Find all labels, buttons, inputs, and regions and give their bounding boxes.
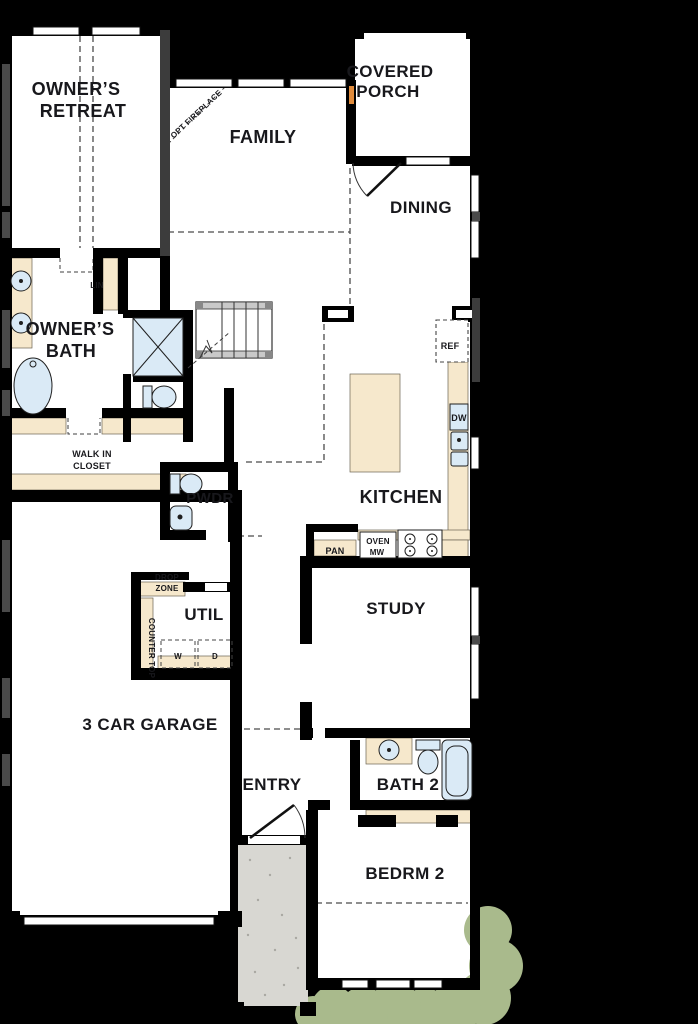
wall [350,800,472,810]
stoop-slab [238,843,308,1006]
kitchen-sink-icon [451,452,468,466]
window-icon [2,390,10,416]
wall [160,30,170,256]
linen-shelf [103,258,118,310]
window-icon [33,27,79,35]
label-garage: 3 CAR GARAGE [82,715,217,734]
window-icon [92,27,140,35]
floor-owners-retreat [8,30,170,256]
drain-icon [20,322,23,325]
drain-icon [178,515,182,519]
toilet-tank-icon [170,474,180,494]
label-oven: OVEN [366,537,389,546]
toilet-tank-icon [416,740,440,750]
window-icon [414,980,442,988]
wall [352,28,478,33]
label-mw: MW [370,548,385,557]
label-owners-bath: OWNER’S [26,319,115,339]
label-counter-top: COUNTER TOP [147,618,156,679]
window-icon [290,79,346,87]
closet-shelf [10,418,66,434]
window-icon [2,678,10,718]
label-covered-porch: PORCH [356,82,419,101]
label-pwdr: PWDR [186,490,233,507]
tub-faucet-icon [30,361,36,367]
toilet-tank-icon [143,386,152,408]
wall-post-slot [328,310,348,318]
drain-icon [20,280,23,283]
wall [131,572,141,672]
label-walkin-closet: WALK IN [72,449,111,459]
label-pan: PAN [326,546,345,556]
wall [232,1002,244,1016]
front-stoop [238,843,308,1006]
toilet-icon [152,386,176,408]
wall-post-slot [456,310,472,318]
wall [300,1002,316,1016]
label-family: FAMILY [230,127,297,147]
door-opening [205,583,227,591]
window-icon [2,212,10,238]
window-icon [471,221,479,258]
wall [306,524,358,532]
drain-icon [388,749,391,752]
window-icon [471,644,479,699]
window-icon [2,754,10,786]
wall [436,815,458,827]
wall [230,492,242,843]
window-mullion [472,212,480,221]
window-icon [238,79,284,87]
label-entry: ENTRY [243,775,302,794]
label-covered-porch: COVERED [347,62,434,81]
wall [8,248,60,258]
wall [123,310,193,318]
label-drop-zone: DROP [155,573,179,582]
label-util: UTIL [184,605,223,624]
wall [0,256,12,492]
drain-icon [458,439,461,442]
window-mullion [472,636,480,644]
window-icon [342,980,368,988]
kitchen-counter [440,540,468,558]
label-ref: REF [441,341,460,351]
wall [325,728,472,738]
toilet-icon [418,750,438,774]
label-bath2: BATH 2 [377,775,440,794]
label-bedrm2: BEDRM 2 [365,864,444,883]
window-icon [471,175,479,212]
kitchen-island [350,374,400,472]
label-owners-bath: BATH [46,341,96,361]
porch-column-marker [349,86,354,104]
floor-garage [8,492,240,917]
wall [300,728,313,738]
label-dw: DW [451,413,467,423]
floor-plan-drawing: OWNER’S RETREAT COVERED PORCH FAMILY DIN… [0,0,698,1024]
wall [350,740,360,802]
wall [306,810,318,990]
label-owners-retreat: OWNER’S [32,79,121,99]
closet-shelf [102,418,186,434]
cooktop-icon [398,530,442,558]
garage-door-opening [24,917,214,925]
wall [470,28,480,164]
wall [160,462,170,540]
closet-shelf [8,474,186,490]
window-icon [2,540,10,612]
front-door-opening [248,836,300,844]
wall [118,248,128,314]
wall [4,911,20,927]
label-dryer: D [212,652,218,661]
label-owners-retreat: RETREAT [40,101,126,121]
wall [358,815,396,827]
window-icon [176,79,232,87]
window-icon [471,587,479,636]
staircase [188,302,272,368]
wall [300,556,312,644]
label-drop-zone: ZONE [155,584,178,593]
window-icon [471,437,479,469]
label-study: STUDY [366,599,426,618]
floor-study [300,560,472,730]
wall [102,408,188,418]
floor-plan: OWNER’S RETREAT COVERED PORCH FAMILY DIN… [0,0,698,1024]
label-walkin-closet: CLOSET [73,461,111,471]
label-dining: DINING [390,198,452,217]
label-washer: W [174,652,182,661]
label-lin: LIN [90,281,104,290]
window-icon [376,980,410,988]
wall [472,298,480,382]
window-icon [2,64,10,206]
wall [93,248,170,258]
wall [224,388,234,466]
wall [160,256,170,314]
window-icon [2,310,10,368]
wall [218,911,242,927]
window-icon [406,157,450,165]
wall [160,530,206,540]
label-kitchen: KITCHEN [360,487,443,507]
wall [470,160,480,990]
wall [308,800,330,810]
